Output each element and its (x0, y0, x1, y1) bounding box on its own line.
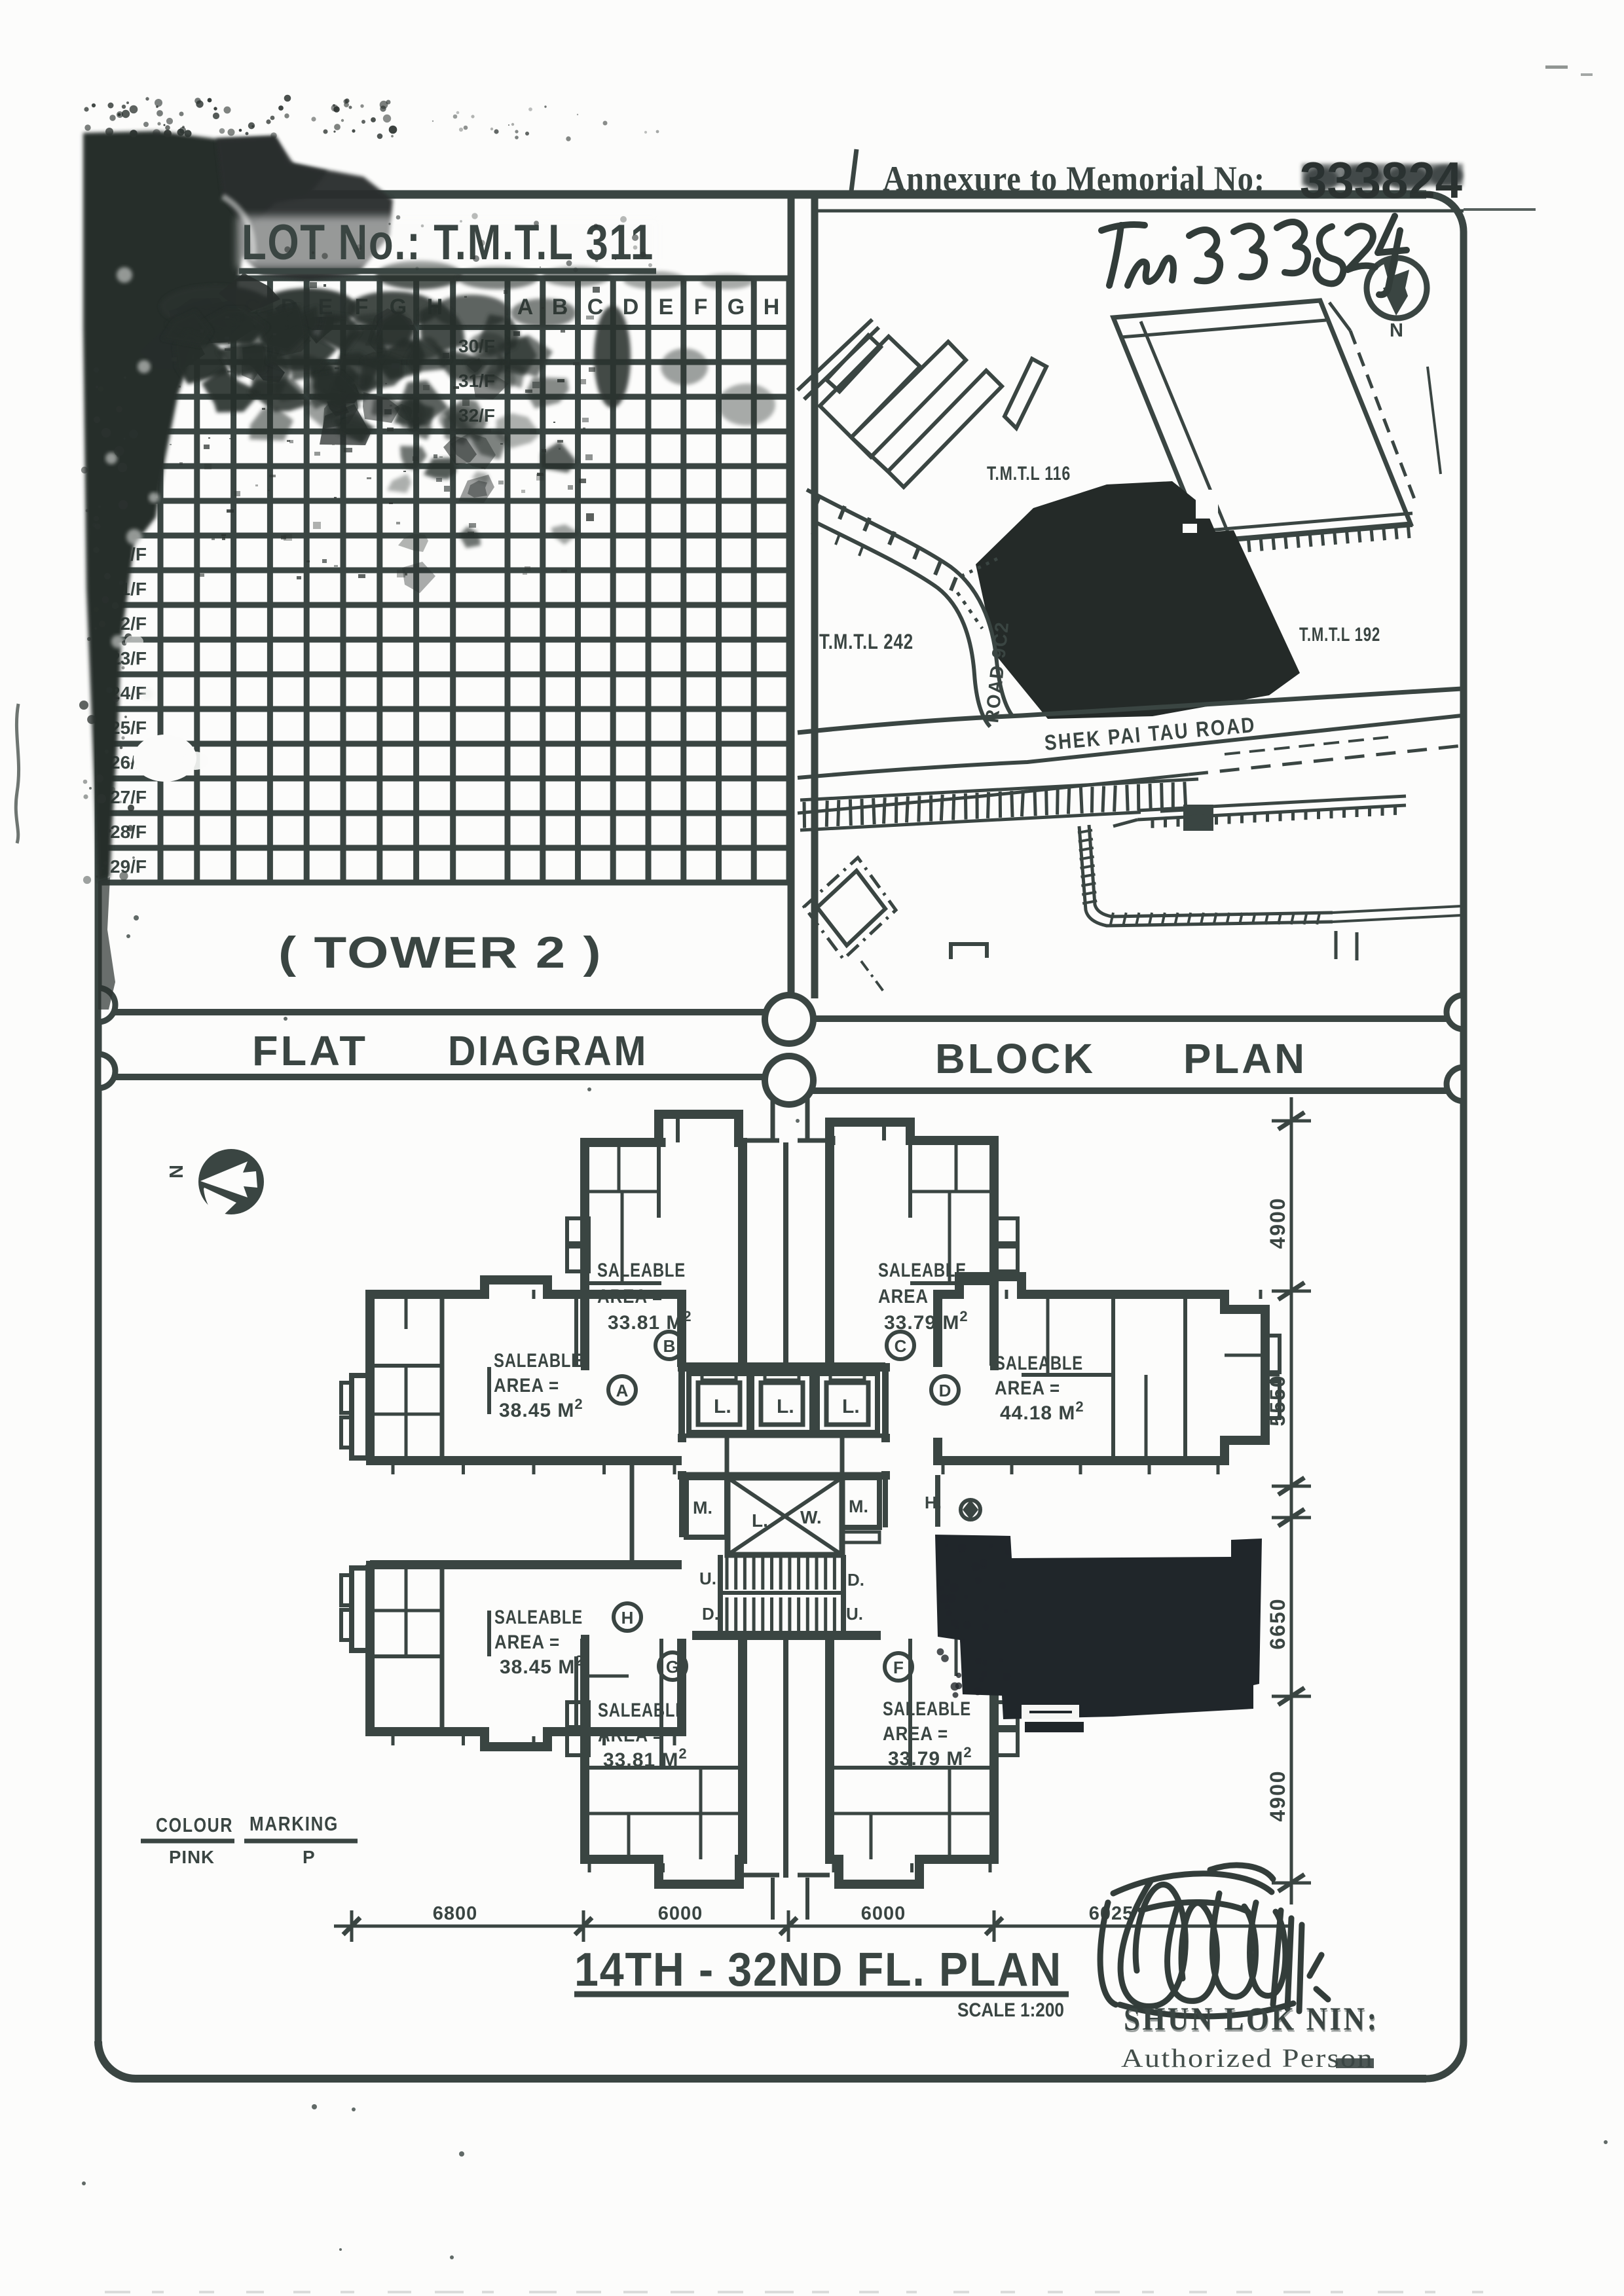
svg-text:SALEABLE: SALEABLE (598, 1700, 686, 1721)
svg-text:D.: D. (702, 1604, 719, 1624)
svg-text:AREA =: AREA = (995, 1377, 1060, 1399)
svg-text:( TOWER 2 ): ( TOWER 2 ) (278, 928, 602, 977)
svg-text:T.M.T.L 192: T.M.T.L 192 (1299, 624, 1380, 646)
svg-text:6650: 6650 (1266, 1597, 1289, 1649)
svg-text:6800: 6800 (433, 1903, 478, 1924)
svg-text:D: D (939, 1381, 951, 1400)
svg-text:28/F: 28/F (110, 822, 147, 842)
svg-text:Annexure to Memorial No:: Annexure to Memorial No: (883, 159, 1265, 198)
svg-text:33.79 M2: 33.79 M2 (888, 1744, 972, 1770)
svg-text:4900: 4900 (1266, 1770, 1289, 1821)
svg-text:SALEABLE: SALEABLE (494, 1350, 582, 1372)
svg-text:COLOUR: COLOUR (156, 1813, 233, 1836)
svg-text:H: H (621, 1608, 634, 1628)
svg-text:F: F (694, 295, 708, 319)
svg-text:4900: 4900 (1266, 1197, 1289, 1248)
svg-text:AREA =: AREA = (598, 1724, 663, 1746)
svg-text:AREA =: AREA = (494, 1375, 559, 1396)
svg-text:6000: 6000 (861, 1903, 906, 1924)
svg-text:U.: U. (846, 1604, 863, 1624)
svg-text:Authorized Person: Authorized Person (1121, 2043, 1374, 2073)
svg-text:27/F: 27/F (110, 787, 147, 807)
svg-text:29/F: 29/F (110, 856, 147, 877)
svg-text:FLAT: FLAT (252, 1027, 368, 1074)
svg-text:SALEABLE: SALEABLE (494, 1607, 583, 1628)
svg-text:L.: L. (752, 1510, 768, 1531)
svg-text:A: A (616, 1381, 629, 1400)
svg-text:M.: M. (849, 1497, 868, 1516)
svg-text:G: G (728, 295, 745, 319)
svg-text:M.: M. (693, 1498, 712, 1518)
svg-text:BLOCK: BLOCK (935, 1035, 1096, 1082)
svg-text:F: F (893, 1658, 904, 1677)
svg-text:44.18 M2: 44.18 M2 (1000, 1398, 1084, 1424)
svg-text:N: N (166, 1165, 187, 1178)
svg-text:T.M.T.L 116: T.M.T.L 116 (987, 463, 1071, 484)
svg-text:L.: L. (777, 1396, 794, 1417)
svg-text:SHUN LOK NIN:: SHUN LOK NIN: (1124, 2002, 1380, 2039)
svg-text:U.: U. (699, 1569, 716, 1588)
svg-text:SCALE 1:200: SCALE 1:200 (957, 1999, 1064, 2021)
svg-text:LOT No.: T.M.T.L 311: LOT No.: T.M.T.L 311 (242, 215, 654, 270)
svg-text:SALEABLE: SALEABLE (995, 1353, 1083, 1374)
svg-text:38.45 M2: 38.45 M2 (500, 1652, 584, 1678)
svg-text:W.: W. (800, 1507, 822, 1527)
svg-text:L.: L. (714, 1396, 731, 1417)
svg-text:MARKING: MARKING (249, 1812, 339, 1835)
svg-text:N: N (1390, 320, 1403, 341)
svg-text:B: B (663, 1336, 676, 1356)
svg-text:C: C (895, 1336, 907, 1356)
svg-text:33.81 M2: 33.81 M2 (603, 1745, 688, 1771)
svg-text:G: G (666, 1657, 679, 1677)
svg-text:5550: 5550 (1266, 1374, 1289, 1426)
svg-text:SALEABLE: SALEABLE (597, 1260, 686, 1281)
svg-text:SALEABLE: SALEABLE (878, 1260, 967, 1281)
svg-text:D.: D. (847, 1570, 864, 1590)
svg-text:PLAN: PLAN (1183, 1035, 1307, 1082)
svg-text:33.79 M2: 33.79 M2 (884, 1308, 969, 1334)
svg-text:P: P (303, 1847, 315, 1867)
svg-text:AREA =: AREA = (883, 1723, 948, 1745)
svg-text:T.M.T.L 242: T.M.T.L 242 (819, 630, 913, 653)
svg-text:14TH - 32ND FL. PLAN: 14TH - 32ND FL. PLAN (574, 1944, 1062, 1996)
svg-text:6000: 6000 (658, 1903, 703, 1924)
svg-text:6025: 6025 (1089, 1903, 1134, 1924)
svg-text:PINK: PINK (169, 1847, 215, 1867)
svg-text:38.45 M2: 38.45 M2 (499, 1396, 583, 1421)
svg-text:DIAGRAM: DIAGRAM (448, 1027, 648, 1074)
svg-text:AREA =: AREA = (494, 1631, 560, 1653)
svg-text:E: E (659, 295, 674, 319)
svg-text:L.: L. (842, 1396, 860, 1417)
svg-text:D: D (623, 295, 639, 319)
svg-text:H: H (764, 295, 780, 319)
svg-text:SALEABLE: SALEABLE (883, 1698, 971, 1720)
